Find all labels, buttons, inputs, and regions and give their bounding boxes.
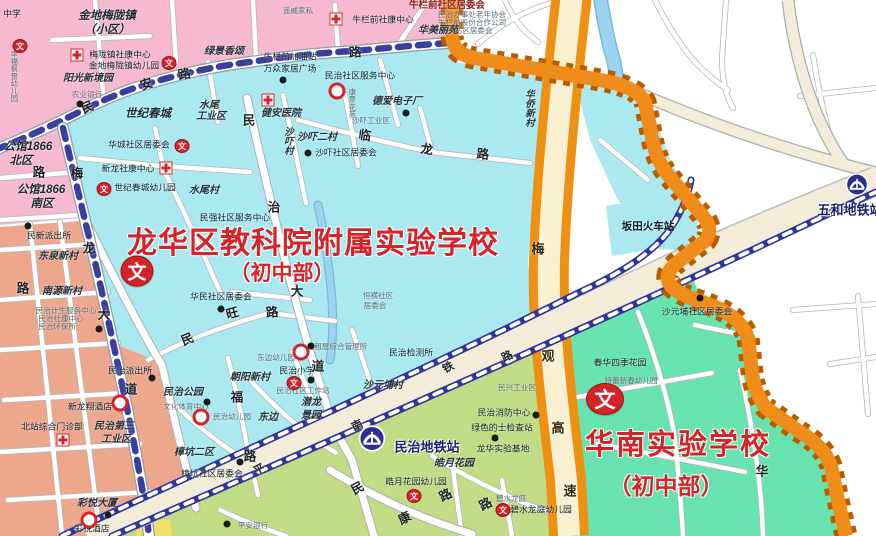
poi-dot (77, 101, 84, 108)
map-label: 北区 (10, 155, 33, 167)
poi-dot (149, 375, 156, 382)
map-label: 民治社区服务中心 (325, 71, 395, 80)
school-title: 龙华区教科院附属实验学校 (127, 218, 499, 262)
poi-dot (305, 150, 312, 157)
map-label: 樟坑社区居委会 (181, 469, 243, 478)
map-label: 南源新村 (42, 287, 82, 298)
map-label: 民兴工业区 (498, 384, 536, 392)
map-label: 新龙社康中心 (102, 164, 155, 173)
school-title: 华南实验学校 (585, 421, 771, 463)
poi-dot (204, 399, 211, 406)
map-label: 民新派出所 (27, 231, 71, 240)
map-label: 东边 (258, 413, 278, 424)
road-label: 道 (312, 356, 325, 375)
hospital-icon (262, 94, 275, 107)
poi-ring-icon (193, 409, 210, 426)
road-label: 路 (476, 143, 490, 163)
map-label: 东边幼儿园 (257, 354, 295, 362)
map-label: 皓月花园 (434, 459, 474, 470)
metro-icon (359, 425, 386, 457)
map-label: 北站综合门诊部 (21, 422, 83, 431)
road-label: 龙 (83, 238, 96, 257)
school-icon: 文 (496, 503, 511, 517)
map-label: 世纪春城 (125, 108, 171, 120)
poi-dot (96, 326, 103, 333)
map-label: 沙元埔社区居委会 (662, 307, 732, 316)
map-label: 公馆1866 (4, 141, 53, 153)
road-label: 福 (231, 387, 244, 406)
map-label: 健安医院 (261, 109, 301, 120)
map-label: 水尾 (199, 101, 219, 112)
school-title: （初中部） (230, 257, 335, 287)
school-icon: 文 (13, 39, 28, 53)
map-label: 世纪春城幼儿园 (114, 183, 176, 192)
map-label: 康景花苑 (348, 88, 356, 118)
poi-dot (403, 110, 410, 117)
map-label: 民治环保所 (38, 323, 76, 331)
map-canvas: 中学幸福枫景幼儿园金地梅陇镇（小区）梅陇镇社康中心金地梅陇镇幼儿园阳光新境园农业… (0, 0, 876, 536)
map-label: 德爱电子厂 (372, 97, 422, 108)
map-label: 华美丽苑 (418, 26, 458, 37)
road-label: 路 (17, 278, 30, 297)
map-label: （小区） (84, 24, 130, 36)
road-label: 临 (357, 124, 372, 145)
map-label: 居委会 (364, 302, 387, 310)
road-label: 路 (33, 162, 46, 181)
map-label: 民治幼儿园 (213, 413, 251, 421)
road-label: 民 (243, 110, 256, 129)
map-label: 公馆1866 (17, 184, 66, 196)
poi-dot (218, 306, 225, 313)
road-label: 速 (563, 481, 576, 500)
school-title: （初中部） (609, 467, 724, 501)
road-label: 治 (268, 197, 281, 216)
road-label: 梅 (71, 163, 84, 182)
road-label: 路 (348, 41, 362, 61)
poi-dot (308, 377, 315, 384)
school-icon: 文 (97, 182, 112, 196)
poi-dot (533, 412, 540, 419)
map-label: 春华四季花园 (594, 358, 647, 367)
map-label: 坂田火车站 (622, 221, 675, 232)
poi-dot (237, 459, 244, 466)
map-label: 景园 (301, 411, 321, 422)
metro-station-label: 五和地铁站 (817, 200, 876, 219)
map-label: 民治公园 (163, 388, 203, 399)
map-label: 碧水龙庭幼儿园 (510, 505, 572, 514)
map-label: 牛栏前社康中心 (352, 15, 414, 24)
map-label: 华民社区居委会 (190, 292, 252, 301)
map-label: 梅陇镇社康中心 (89, 50, 151, 59)
map-label: 绿景香颂 (204, 47, 244, 58)
map-label: 朝阳新村 (230, 373, 270, 384)
metro-icon (846, 173, 869, 201)
map-label: 碧水龙庭 (496, 495, 526, 503)
map-label: 东泉新村 (38, 252, 78, 263)
map-label: 新龙翔酒店 (68, 402, 112, 411)
poi-ring-icon (329, 83, 346, 100)
road-label: 华 (756, 461, 769, 480)
road-label: 高 (551, 418, 564, 437)
poi-dot (492, 435, 499, 442)
school-icon-large: 文 (121, 256, 154, 287)
road-label: 梅 (531, 239, 544, 258)
map-label: 中学 (3, 9, 21, 18)
road-label: 大 (98, 304, 111, 323)
map-label: 彩悦大厦 (77, 499, 117, 510)
poi-ring-icon (81, 512, 98, 529)
road-label: 路 (265, 301, 279, 321)
map-label: 民治派出所 (108, 366, 152, 375)
map-label: 工业区 (101, 435, 131, 446)
map-label: 金地梅陇镇 (78, 10, 136, 22)
hospital-icon (71, 49, 84, 62)
school-icon: 文 (175, 139, 190, 153)
school-icon: 文 (407, 489, 422, 503)
map-label: 民治小学 (279, 366, 314, 375)
poi-dot (280, 77, 287, 84)
hospital-icon (57, 434, 70, 447)
map-label: 水尾村 (189, 186, 219, 197)
map-label: 沙吓村 (282, 127, 292, 156)
poi-ring-icon (112, 395, 129, 412)
map-label: 阳光新境园 (63, 74, 113, 85)
map-label: 牛栏前加油站 (264, 52, 317, 61)
map-label: 平安银行 (238, 522, 268, 530)
map-label: 沙吓社区居委会 (315, 148, 377, 157)
metro-station-label: 民治地铁站 (394, 437, 459, 456)
map-label: 遥威家私 (283, 7, 313, 15)
road-label: 龙 (419, 138, 434, 159)
map-label: 金地梅陇镇幼儿园 (89, 61, 159, 70)
map-label: 民治消防中心 (478, 408, 531, 417)
road-label: 道 (125, 379, 138, 398)
map-label: 恒横社区 (363, 292, 393, 300)
map-label: 沙吓工业区 (352, 117, 390, 125)
poi-dot (25, 223, 32, 230)
hospital-icon (160, 162, 173, 175)
map-label: 万众家居广场 (264, 64, 317, 73)
road-label: 观 (541, 346, 554, 365)
map-label: 华城社区居委会 (108, 140, 170, 149)
school-icon: 文 (287, 376, 302, 390)
map-label: 潜龙 (301, 398, 321, 409)
school-icon-large: 文 (586, 383, 624, 415)
school-icon: 文 (162, 56, 177, 70)
poi-dot (224, 521, 231, 528)
map-label: 绿色的士检查站 (471, 423, 533, 432)
map-label: 樟坑二区 (174, 448, 214, 459)
map-label: 工业区 (196, 112, 226, 123)
map-label: 出租屋综合管理所 (307, 343, 368, 351)
map-label: 民治检测所 (389, 348, 433, 357)
map-label: 沙元埔村 (363, 381, 403, 392)
poi-dot (105, 512, 112, 519)
hospital-icon (330, 13, 343, 26)
map-label: 沙吓二村 (297, 133, 337, 144)
map-label: 龙华实验基地 (477, 444, 530, 453)
map-label: 南区 (31, 198, 54, 210)
map-label: 幸福枫景幼儿园 (10, 50, 18, 102)
poi-ring-icon (293, 344, 310, 361)
map-label: 民治第三 (94, 422, 134, 433)
map-label: 华侨新村 (523, 89, 533, 127)
poi-dot (697, 295, 704, 302)
map-label: 皓月花园幼儿园 (385, 477, 447, 486)
map-label: 民治社区工作站 (276, 387, 329, 395)
